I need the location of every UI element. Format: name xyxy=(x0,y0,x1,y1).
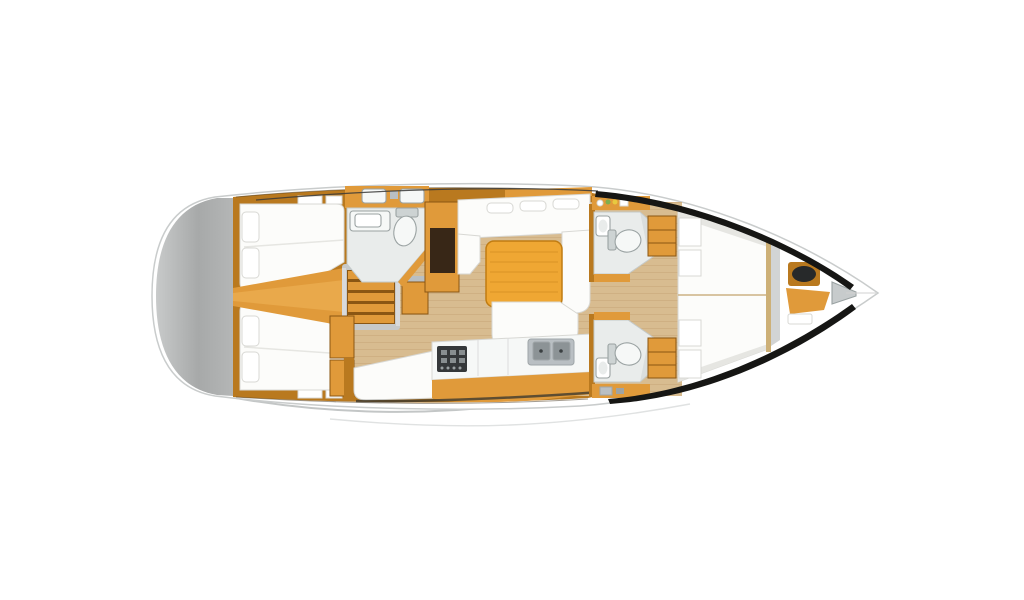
shelf-cabinet xyxy=(648,338,676,378)
shelf-item xyxy=(613,200,618,205)
shelf-item xyxy=(606,200,611,205)
backrest-cushion xyxy=(520,201,546,211)
deck-hatch-icon xyxy=(298,196,322,204)
backrest-cushion xyxy=(487,203,513,213)
berth-shelf-panel xyxy=(679,250,701,276)
berth-trim xyxy=(344,358,354,400)
berth-shelf-panel xyxy=(679,350,701,378)
head-door xyxy=(594,274,630,282)
berth-shelf-panel xyxy=(679,218,701,246)
shelf-item xyxy=(616,388,624,394)
pillow-icon xyxy=(242,352,259,382)
bow-hatch-icon xyxy=(792,266,816,282)
deck-hatch-icon xyxy=(298,390,322,398)
forward-bulkhead xyxy=(766,238,771,352)
yacht-floor-plan xyxy=(0,0,1024,600)
backrest-cushion xyxy=(553,199,579,209)
floor-plan-canvas xyxy=(0,0,1024,600)
wardrobe-cabinet xyxy=(330,316,354,358)
double-sink-icon xyxy=(528,339,574,365)
pillow-icon xyxy=(242,248,259,278)
berth-shelf-panel xyxy=(679,320,701,346)
faucet-icon xyxy=(390,191,398,199)
nav-seat xyxy=(402,282,428,314)
basin-icon xyxy=(599,362,608,375)
bow-step xyxy=(788,314,812,324)
stove-icon xyxy=(437,346,467,372)
saloon-table xyxy=(486,241,562,307)
pillow-icon xyxy=(242,212,259,242)
shelf-item xyxy=(600,387,612,395)
sink-icon xyxy=(400,189,424,203)
basin-icon xyxy=(355,214,381,227)
shelf-cabinet xyxy=(648,216,676,256)
shelf-item xyxy=(597,200,603,206)
head-door xyxy=(594,312,630,320)
settee-right xyxy=(562,230,590,313)
deck-hatch-icon xyxy=(326,196,342,204)
chart-table-panel xyxy=(430,228,455,273)
pillow-icon xyxy=(242,316,259,346)
basin-icon xyxy=(599,220,608,233)
nav-station xyxy=(425,202,459,292)
bow-bulkhead-face xyxy=(771,243,780,346)
